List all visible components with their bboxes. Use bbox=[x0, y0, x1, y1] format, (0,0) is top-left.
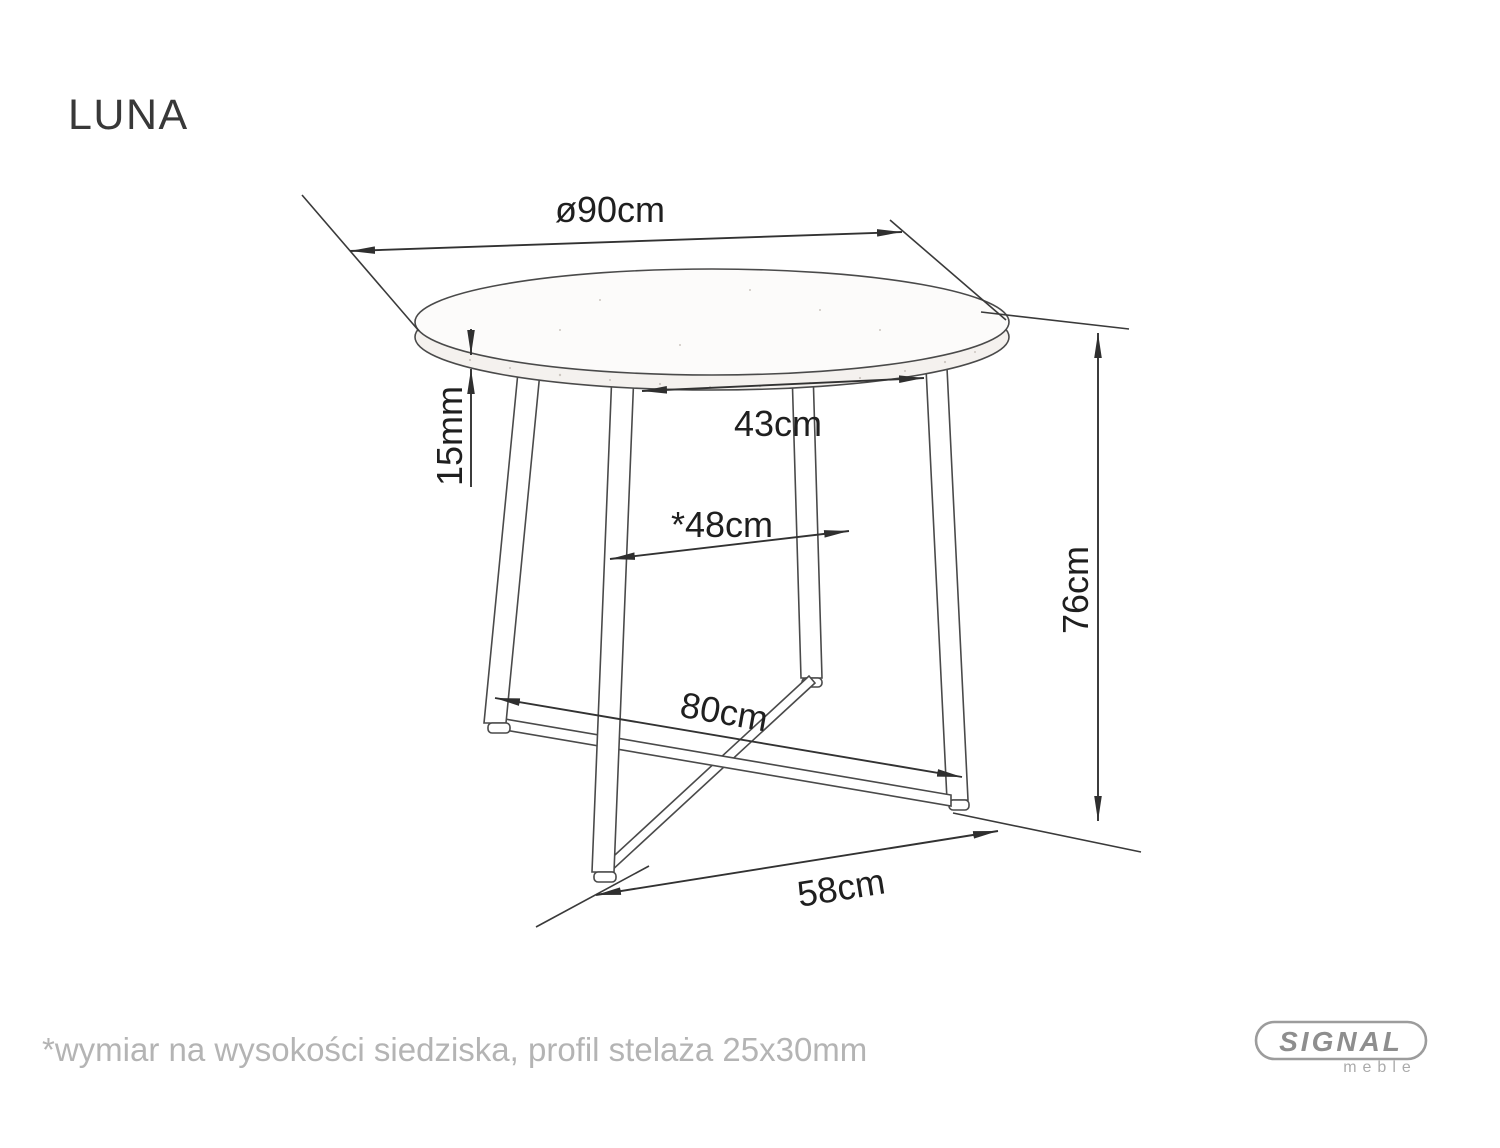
dimension-height: 76cm bbox=[953, 312, 1141, 852]
seat-level-width-label: *48cm bbox=[671, 504, 773, 545]
diameter-label: ø90cm bbox=[555, 189, 665, 230]
table-drawing bbox=[415, 269, 1009, 882]
logo-brand-text: SIGNAL bbox=[1279, 1026, 1403, 1057]
product-dimension-sheet: ø90cm 15mm 43cm *48cm bbox=[0, 0, 1500, 1148]
table-leg-left bbox=[484, 372, 540, 733]
frame-top-width-label: 43cm bbox=[734, 403, 822, 444]
base-width-label: 58cm bbox=[794, 861, 887, 915]
footnote: *wymiar na wysokości siedziska, profil s… bbox=[42, 1031, 867, 1068]
table-top bbox=[415, 269, 1009, 390]
brand-logo: SIGNAL meble bbox=[1256, 1022, 1426, 1076]
logo-subtitle-text: meble bbox=[1343, 1059, 1417, 1076]
table-leg-front bbox=[592, 372, 634, 882]
diagram-canvas: ø90cm 15mm 43cm *48cm bbox=[0, 0, 1500, 1148]
height-label: 76cm bbox=[1055, 546, 1096, 634]
top-thickness-label: 15mm bbox=[429, 386, 470, 486]
table-top-surface bbox=[415, 269, 1009, 375]
table-leg-right bbox=[926, 368, 969, 810]
page-title: LUNA bbox=[68, 91, 189, 139]
